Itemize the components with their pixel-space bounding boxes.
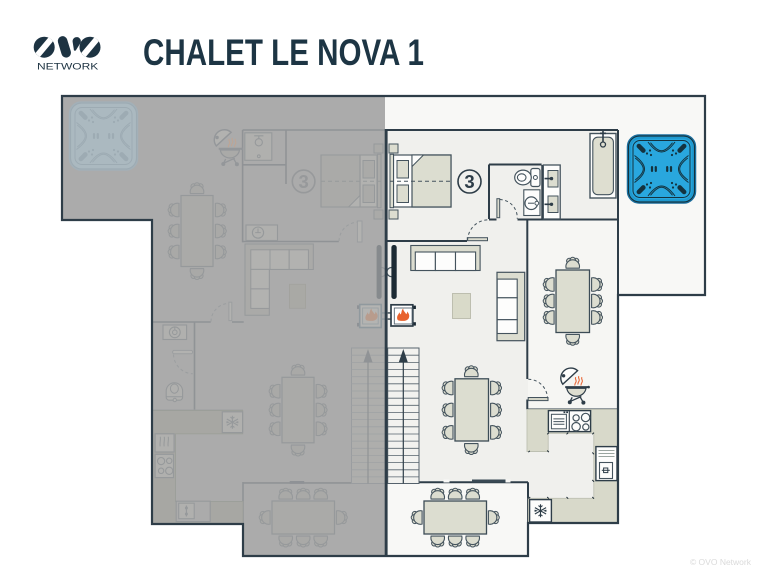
svg-text:© OVO Network: © OVO Network (690, 557, 752, 567)
svg-text:CHALET LE NOVA 1: CHALET LE NOVA 1 (143, 31, 424, 73)
svg-text:3: 3 (298, 171, 308, 192)
svg-text:NETWORK: NETWORK (37, 62, 98, 72)
svg-text:3: 3 (464, 171, 474, 192)
